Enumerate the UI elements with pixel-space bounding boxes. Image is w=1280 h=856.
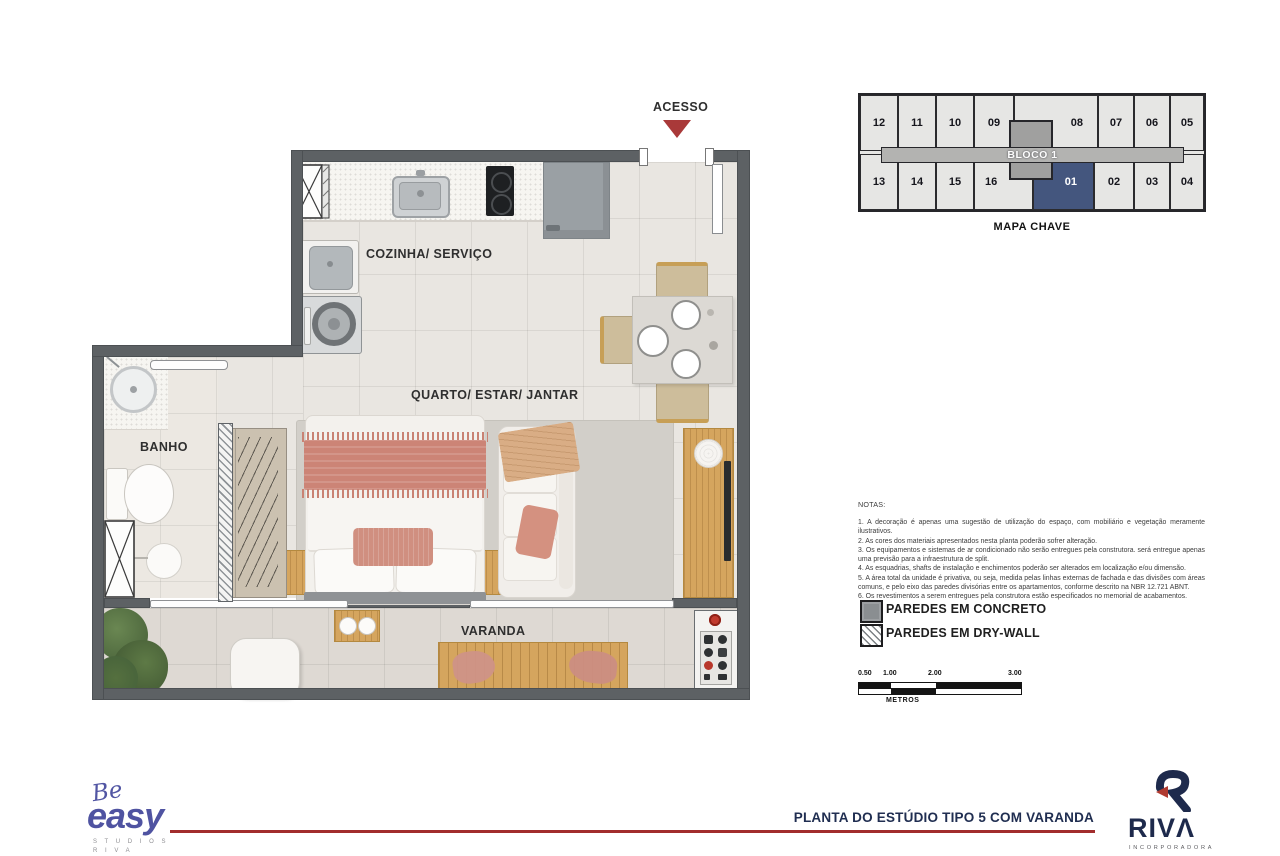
scale-unit-label: METROS	[886, 697, 920, 704]
label-kitchen: COZINHA/ SERVIÇO	[366, 247, 492, 261]
kitchen-sink	[392, 176, 450, 218]
wall-left	[92, 345, 104, 700]
riva-logo-icon	[1146, 770, 1194, 812]
unit-cell: 11	[898, 95, 936, 151]
wall-kitchen-left	[291, 150, 303, 357]
note-item: 2. As cores dos materiais apresentados n…	[858, 537, 1205, 546]
note-item: 4. As esquadrias, shafts de instalação e…	[858, 564, 1205, 573]
notes-block: NOTAS: 1. A decoração é apenas uma suges…	[858, 500, 1205, 602]
legend-drywall-label: PAREDES EM DRY-WALL	[886, 626, 1040, 640]
scale-tick: 0.50	[858, 670, 872, 677]
bed-throw	[304, 440, 486, 490]
unit-cell: 05	[1170, 95, 1204, 151]
wall-top-left-segment	[291, 150, 641, 162]
entry-door-jamb-left	[639, 148, 648, 166]
laundry-sink	[300, 240, 359, 294]
beasy-logo-sub-riva: R I V A	[93, 848, 133, 854]
label-balcony: VARANDA	[461, 624, 525, 638]
sheet-title: PLANTA DO ESTÚDIO TIPO 5 COM VARANDA	[694, 810, 1094, 825]
drywall-partition	[218, 423, 233, 602]
shaft-box-bath-icon	[104, 520, 135, 598]
cooktop	[486, 166, 514, 216]
unit-cell: 12	[860, 95, 898, 151]
key-map-grid: 12 11 10 09 08 07 06 05 13 14 15 16 01 0…	[858, 93, 1206, 212]
beasy-logo-sub-studios: S T U D I O S	[93, 839, 168, 845]
refrigerator	[543, 162, 610, 239]
unit-cell: 07	[1098, 95, 1134, 151]
wall-right	[737, 150, 750, 700]
legend-concrete-swatch	[860, 600, 883, 623]
riva-logo-wordmark: RIVΛ	[1128, 813, 1195, 844]
riva-logo-subtitle: INCORPORADORA	[1129, 845, 1214, 851]
bench-towel-right	[567, 649, 618, 686]
bed-throw-fringe-bottom	[302, 489, 488, 498]
tv	[724, 461, 731, 561]
sofa	[498, 426, 576, 598]
label-access: ACESSO	[653, 100, 708, 114]
scale-tick: 1.00	[883, 670, 897, 677]
note-item: 1. A decoração é apenas uma sugestão de …	[858, 518, 1205, 537]
technical-panel	[694, 610, 738, 690]
washing-machine	[300, 296, 362, 354]
note-item: 5. A área total da unidade é privativa, …	[858, 574, 1205, 593]
balcony-bench	[438, 642, 628, 691]
legend-drywall-swatch	[860, 624, 883, 647]
closet	[231, 428, 287, 598]
toilet	[106, 464, 170, 522]
label-main-room: QUARTO/ ESTAR/ JANTAR	[411, 388, 578, 402]
dining-chair-bottom	[656, 382, 709, 423]
bathroom-sliding-door	[150, 360, 228, 370]
dining-chair-left	[600, 316, 636, 364]
scale-bar: 0.50 1.00 2.00 3.00 METROS	[858, 670, 1022, 708]
key-map-title: MAPA CHAVE	[858, 221, 1206, 233]
wall-balcony-seg-3	[672, 598, 737, 608]
balcony-sliding-track-1	[150, 600, 348, 608]
floorplan-sheet: COZINHA/ SERVIÇO QUARTO/ ESTAR/ JANTAR B…	[0, 0, 1280, 856]
beasy-logo-script: Be	[90, 777, 124, 807]
note-item: 3. Os equipamentos e sistemas de ar cond…	[858, 546, 1205, 565]
entry-door-leaf	[712, 164, 723, 234]
wall-balcony-seg-1	[104, 598, 150, 608]
tv-console	[683, 428, 734, 598]
unit-cell: 06	[1134, 95, 1170, 151]
panel-red-valve	[709, 614, 721, 626]
balcony-sliding-track-2	[470, 600, 674, 608]
dining-table	[632, 296, 733, 384]
scale-tick: 3.00	[1008, 670, 1022, 677]
footer-divider-line	[170, 830, 1095, 833]
legend-concrete-label: PAREDES EM CONCRETO	[886, 602, 1046, 616]
bath-sink	[110, 366, 157, 413]
notes-title: NOTAS:	[858, 500, 1205, 509]
key-map-corridor: BLOCO 1	[881, 147, 1184, 163]
floor-balcony	[104, 608, 737, 688]
block-label: BLOCO 1	[1007, 149, 1057, 161]
bench-towel-left	[451, 648, 497, 686]
unit-cell: 10	[936, 95, 974, 151]
unit-cell: 09	[974, 95, 1014, 151]
wall-bottom	[92, 688, 750, 700]
access-arrow-icon	[663, 120, 691, 138]
decor-vase	[694, 439, 723, 468]
balcony-tray	[334, 610, 380, 642]
shower-seat	[146, 543, 182, 579]
wall-step	[92, 345, 303, 357]
label-bathroom: BANHO	[140, 440, 188, 454]
scale-bar-row	[858, 688, 1022, 695]
bed-cushion	[353, 528, 433, 566]
scale-tick: 2.00	[928, 670, 942, 677]
note-item: 6. Os revestimentos a serem entregues pe…	[858, 592, 1205, 601]
bed	[305, 415, 485, 605]
